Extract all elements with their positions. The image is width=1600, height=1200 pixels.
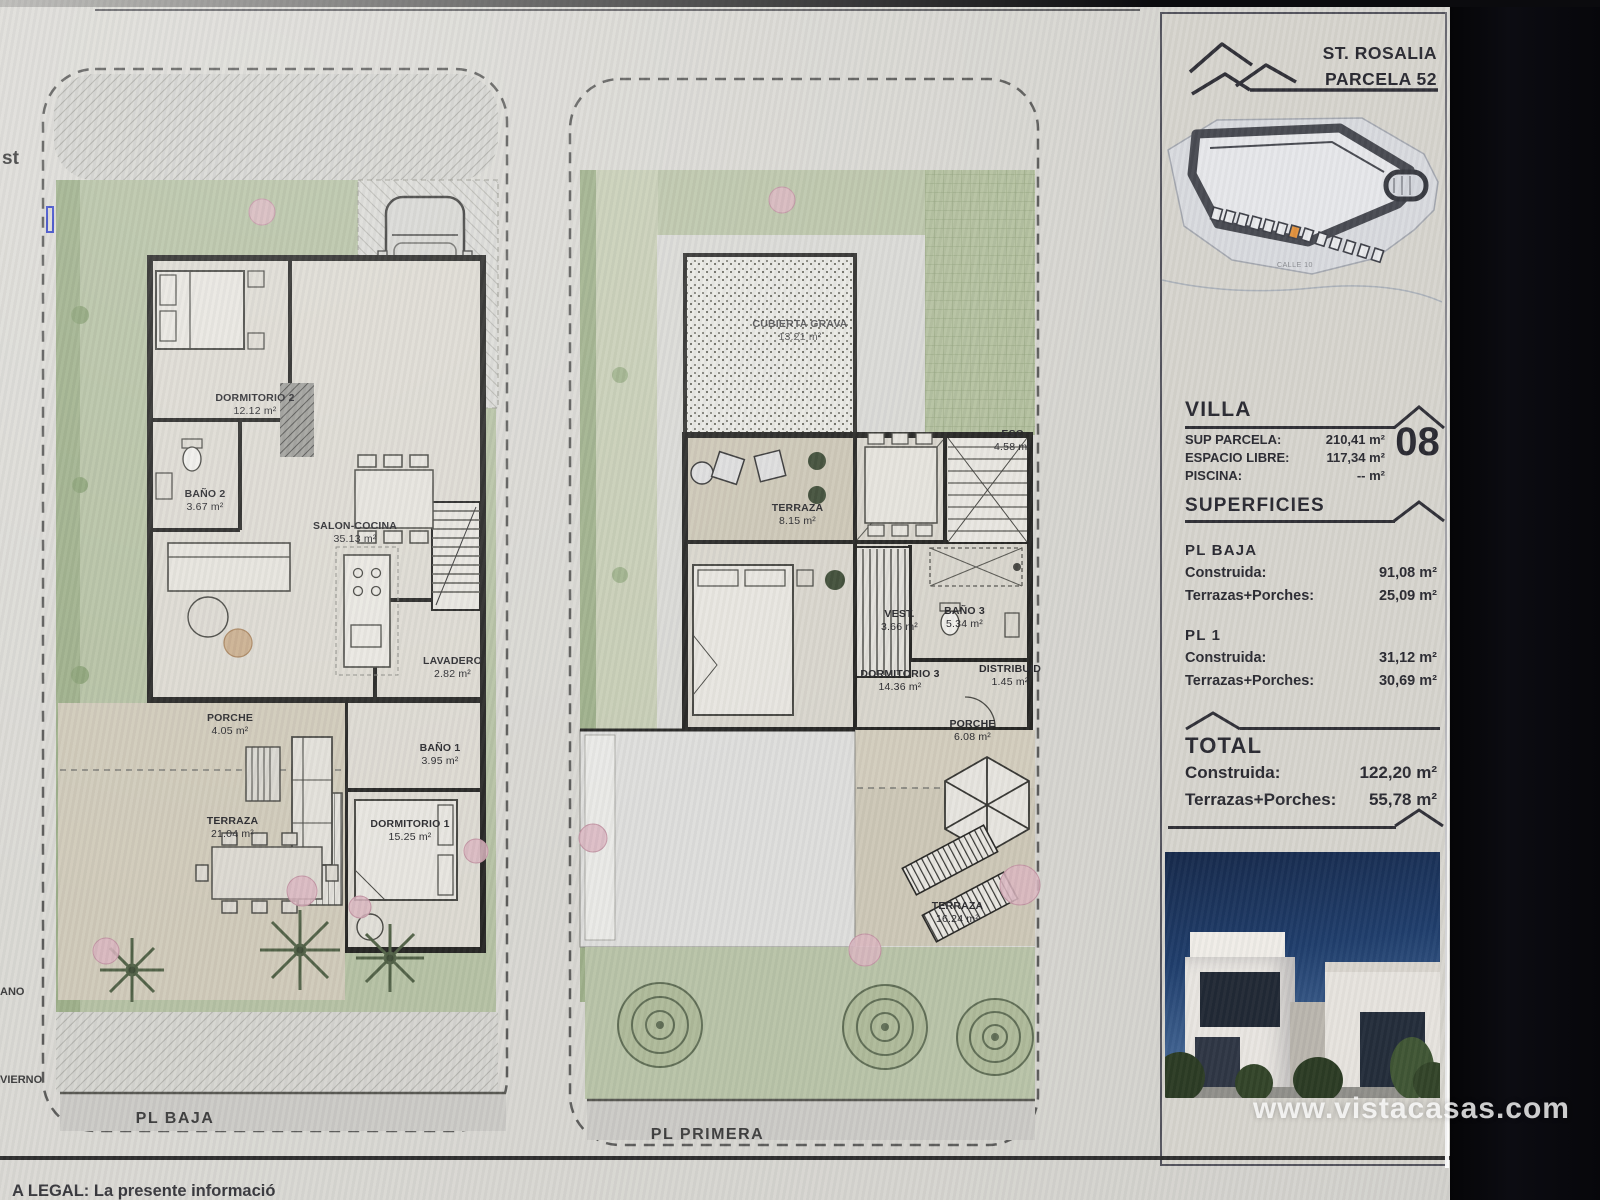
room-label-terraza: TERRAZA21.04 m² [175, 815, 290, 841]
top-shade [0, 0, 1600, 7]
porch-sofa-icon [292, 737, 332, 865]
gravel-roof [685, 255, 855, 435]
plan-baja-label: PL BAJA [110, 1110, 240, 1128]
watermark: www.vistacasas.com [1140, 1092, 1570, 1126]
room-label-dormitorio-1: DORMITORIO 115.25 m² [340, 818, 480, 844]
spec-row: Terrazas+Porches:30,69 m² [1185, 673, 1437, 689]
villa-heading: VILLA [1185, 398, 1252, 422]
room-label-dormitorio-3: DORMITORIO 314.36 m² [825, 668, 975, 694]
photo-divider [1168, 826, 1396, 829]
total-row: Construida:122,20 m² [1185, 763, 1437, 783]
roof-icon [1394, 808, 1444, 828]
total-row: Terrazas+Porches:55,78 m² [1185, 790, 1437, 810]
lower-roof [580, 730, 855, 947]
pl-1-title: PL 1 [1185, 627, 1221, 644]
room-label-cubierta-grava: CUBIERTA GRAVA13.21 m² [730, 318, 870, 344]
street-pavement [54, 74, 498, 180]
blue-marker [47, 207, 53, 232]
room-label-distribuidor: DISTRIBUID1.45 m² [955, 663, 1065, 689]
pool-icon [1386, 172, 1426, 199]
bezel-highlight [1445, 0, 1449, 1168]
legal-notice: A LEGAL: La presente informació [12, 1182, 275, 1200]
photo-window-band [1200, 972, 1280, 1027]
superficies-heading: SUPERFICIES [1185, 495, 1325, 517]
total-heading: TOTAL [1185, 733, 1262, 759]
pergola-lattice [925, 170, 1035, 435]
spec-row: ESPACIO LIBRE:117,34 m² [1185, 450, 1385, 465]
spec-row: Construida:91,08 m² [1185, 565, 1437, 581]
room-label-lavadero: LAVADERO2.82 m² [400, 655, 505, 681]
street-label: CALLE 10 [1255, 262, 1335, 269]
room-label-bano-1: BAÑO 13.95 m² [395, 742, 485, 768]
room-label-dormitorio-2: DORMITORIO 212.12 m² [185, 392, 325, 418]
total-divider [1240, 727, 1440, 730]
sheet-bottom-rule [0, 1156, 1450, 1160]
louver-bench-icon [246, 747, 280, 801]
spec-row: Terrazas+Porches:25,09 m² [1185, 588, 1437, 604]
sheet-top-border [95, 9, 1140, 11]
sidewalk [56, 1012, 498, 1092]
spec-row: SUP PARCELA:210,41 m² [1185, 432, 1385, 447]
parcel-name: PARCELA 52 [1240, 66, 1437, 92]
roof-icon [1185, 711, 1241, 731]
document-sheet: DORMITORIO 212.12 m² BAÑO 23.67 m² SALON… [0, 0, 1450, 1200]
spec-row: Construida:31,12 m² [1185, 650, 1437, 666]
project-name: ST. ROSALIA [1240, 40, 1437, 66]
room-label-bano-2: BAÑO 23.67 m² [150, 488, 260, 514]
spec-row: PISCINA:-- m² [1185, 468, 1385, 483]
edge-fragment-middle: ANO [0, 986, 24, 998]
plan-primera-label: PL PRIMERA [635, 1126, 780, 1144]
floor-plan-baja [40, 65, 510, 1140]
edge-fragment-bottom: VIERNO [0, 1074, 42, 1086]
villa-photo [1165, 852, 1440, 1098]
edge-fragment-top: st [2, 148, 19, 170]
pl-baja-title: PL BAJA [1185, 542, 1257, 559]
room-label-terraza-16: TERRAZA16.24 m² [900, 900, 1015, 926]
screen-photo: DORMITORIO 212.12 m² BAÑO 23.67 m² SALON… [0, 0, 1600, 1200]
plant-icon [825, 570, 845, 590]
villa-underline [1185, 426, 1395, 429]
project-title: ST. ROSALIA PARCELA 52 [1240, 40, 1437, 92]
room-label-salon-cocina: SALON-COCINA35.13 m² [285, 520, 425, 546]
monitor-bezel [1450, 0, 1600, 1200]
room-label-porche: PORCHE4.05 m² [175, 712, 285, 738]
room-label-porche-p1: PORCHE6.08 m² [915, 718, 1030, 744]
roof-icon [1393, 499, 1445, 523]
kitchen-island-icon [336, 547, 398, 675]
room-label-esc: ESC4.58 m² [975, 428, 1050, 454]
room-label-bano-3: BAÑO 35.34 m² [922, 605, 1007, 631]
site-plan-map [1162, 112, 1442, 312]
villa-number: 08 [1390, 420, 1445, 465]
stairs-icon [432, 502, 480, 610]
room-label-terraza-8: TERRAZA8.15 m² [740, 502, 855, 528]
superficies-underline [1185, 520, 1395, 523]
